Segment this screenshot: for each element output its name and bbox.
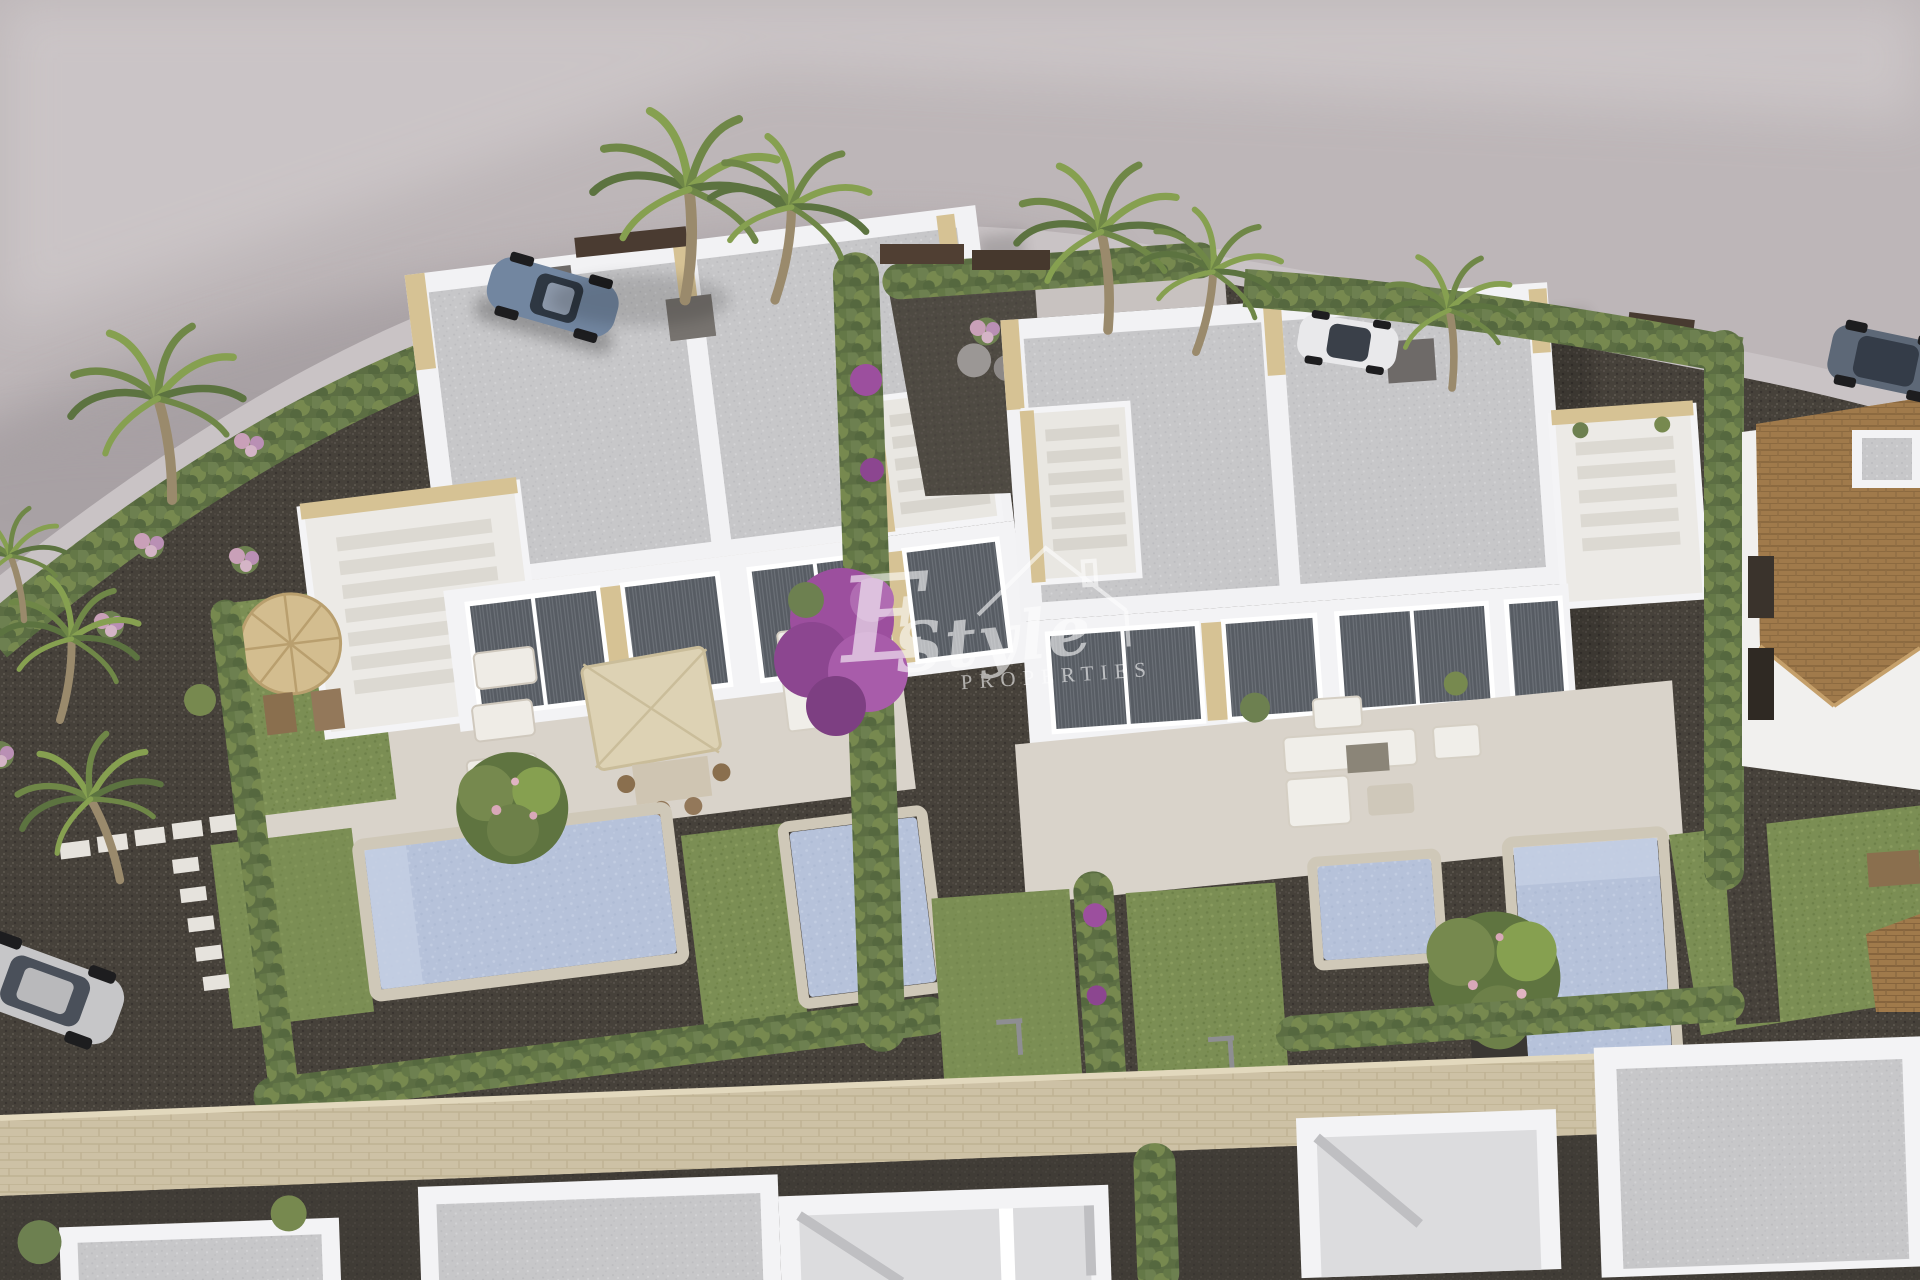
- villa-right-annex-stairs: [1020, 404, 1140, 583]
- pool-third-water: [1317, 859, 1437, 961]
- bougainvillea-patch: [850, 364, 882, 396]
- window: [904, 539, 1011, 662]
- dark-fence: [972, 250, 1050, 270]
- bougainvillea-patch: [860, 458, 884, 482]
- window: [1223, 615, 1322, 719]
- render-canvas: E Style PROPERTIES: [0, 0, 1920, 1280]
- garden-table: [1867, 850, 1920, 888]
- palm-shadow: [550, 274, 730, 326]
- car-glass: [1325, 323, 1372, 363]
- villa-right-lawn-1-texture: [932, 889, 1083, 1094]
- garden-chair: [311, 688, 346, 731]
- dark-fence: [880, 244, 964, 264]
- villa-right-lawn-2: [1126, 883, 1290, 1093]
- east-hedge: [1704, 330, 1744, 890]
- window: [1506, 598, 1567, 700]
- villa-right-solarium: [1551, 400, 1706, 605]
- ottoman: [1367, 783, 1415, 816]
- villa-left-lawn-west-texture: [211, 828, 374, 1029]
- flat-annex-roof: [1862, 438, 1912, 480]
- shell-3: [1296, 1109, 1561, 1278]
- cypress-between-shells: [1133, 1142, 1180, 1280]
- shell-4: [1594, 1036, 1920, 1277]
- tiled-house-window: [1748, 556, 1774, 618]
- garden-chair: [263, 692, 298, 735]
- shrub: [184, 684, 216, 716]
- scene-svg: [0, 0, 1920, 1280]
- coffee-table: [1346, 742, 1390, 773]
- tiled-house-window: [1748, 648, 1774, 720]
- solarium-deck: [1551, 406, 1706, 605]
